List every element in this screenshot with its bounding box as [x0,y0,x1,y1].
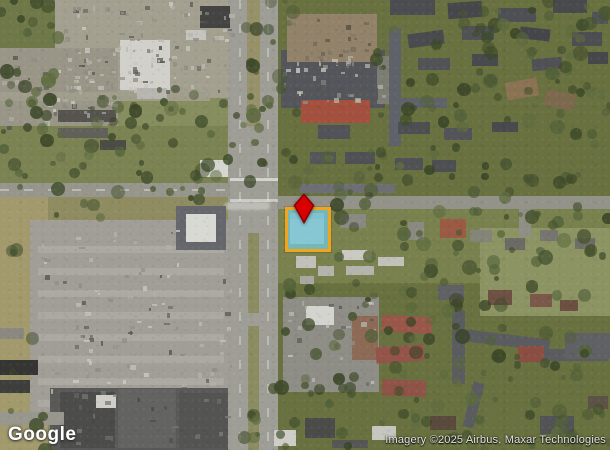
ground-clutter [148,326,152,329]
tree-canopy [525,210,539,224]
ground-clutter [175,46,180,49]
tree-canopy [452,143,461,152]
tree-canopy [47,22,54,29]
nw-grove-ground [0,0,55,48]
tree-canopy [497,230,506,239]
tree-canopy [579,345,591,357]
left-field [0,186,48,450]
tree-canopy [527,51,535,59]
tree-canopy [528,7,535,14]
ground-clutter [220,340,225,342]
tree-canopy [263,24,274,35]
ground-clutter [373,329,375,331]
parking-row [38,312,224,319]
ground-clutter [80,335,82,338]
tree-canopy [265,0,277,8]
tree-canopy [336,427,348,439]
trailer-row [58,128,108,138]
ground-clutter [74,80,79,83]
ground-clutter [306,83,312,86]
tree-canopy [554,419,565,430]
ground-clutter [76,442,81,445]
ground-clutter [350,95,354,97]
ground-clutter [133,62,138,64]
tree-canopy [378,112,384,118]
ground-clutter [172,428,175,432]
house-roof-red [440,219,466,238]
ground-clutter [351,34,356,37]
satellite-map-view[interactable]: Google Imagery ©2025 Airbus, Maxar Techn… [0,0,610,450]
ground-clutter [2,76,5,79]
tree-canopy [426,316,436,326]
trailer-row [58,110,116,122]
tree-canopy [495,8,501,14]
apartment-roof [310,152,336,164]
ground-clutter [87,375,89,378]
ground-clutter [361,322,367,327]
tree-canopy [420,95,434,109]
tree-canopy [9,368,16,375]
ground-clutter [156,54,159,56]
ground-clutter [368,43,371,46]
ground-clutter [371,381,374,384]
tree-canopy [365,297,371,303]
ground-clutter [76,325,78,330]
house-roof [430,416,456,430]
ground-clutter [83,9,88,13]
tree-canopy [573,211,583,221]
ground-clutter [351,47,355,52]
ground-clutter [204,399,209,402]
tree-canopy [207,130,215,138]
ground-clutter [126,47,128,52]
ground-clutter [321,68,325,72]
tree-canopy [475,23,486,34]
ground-clutter [120,33,124,35]
tree-canopy [26,332,39,345]
tree-canopy [471,83,480,92]
apartment-roof [407,30,445,49]
ground-clutter [346,61,351,66]
tree-canopy [198,187,206,195]
ground-clutter [313,76,315,81]
ground-clutter [225,312,231,315]
ground-clutter [85,48,90,53]
tree-canopy [525,410,535,420]
ground-clutter [58,70,61,73]
tree-canopy [246,58,255,67]
ground-clutter [128,71,131,74]
ground-clutter [176,230,181,232]
tree-canopy [458,17,471,30]
ground-clutter [304,68,307,72]
ground-clutter [72,104,77,108]
ground-clutter [379,66,381,69]
ground-clutter [108,124,112,126]
ground-clutter [167,275,170,279]
tree-canopy [534,211,541,218]
ground-clutter [88,71,92,74]
tree-canopy [564,331,577,344]
se-road [463,381,485,428]
tree-canopy [8,408,14,414]
tree-canopy [409,335,417,343]
ground-clutter [76,237,81,240]
tree-canopy [160,98,169,107]
highway-median [247,0,260,126]
ground-clutter [297,62,299,67]
ground-clutter [339,306,342,309]
tree-canopy [430,145,436,151]
ground-clutter [225,416,231,418]
ground-clutter [75,76,80,79]
ground-clutter [77,7,80,11]
tree-canopy [330,198,344,212]
ground-clutter [341,326,346,329]
ground-clutter [103,114,107,117]
tree-canopy [565,25,578,38]
ground-clutter [63,99,68,102]
ground-clutter [123,380,125,383]
ground-clutter [150,420,156,422]
ground-clutter [151,63,153,68]
tree-canopy [398,409,408,419]
tree-canopy [270,39,276,45]
tree-canopy [402,174,413,185]
tree-canopy [548,220,558,230]
tree-canopy [41,110,52,121]
tree-canopy [308,390,315,397]
ground-clutter [44,86,49,90]
ground-clutter [9,83,15,86]
house-roof [488,290,512,305]
ground-clutter [86,35,89,40]
tree-canopy [583,17,597,31]
tree-canopy [304,284,315,295]
tree-canopy [325,399,334,408]
mall-roof [50,388,232,450]
ground-clutter [348,37,351,41]
ground-clutter [217,399,220,404]
ground-clutter [95,290,100,292]
tree-canopy [504,214,509,219]
ground-clutter [188,33,192,37]
tree-canopy [553,176,566,189]
ground-clutter [2,81,7,85]
ground-clutter [88,107,92,109]
tree-canopy [30,0,43,9]
tree-canopy [598,6,610,21]
lane-line [239,0,241,450]
tree-canopy [531,256,542,267]
tree-canopy [514,361,521,368]
apartment-roof [519,26,550,41]
tree-canopy [516,32,530,46]
tree-canopy [557,233,571,247]
ground-clutter [98,293,101,295]
ground-clutter [77,14,80,19]
tree-canopy [276,430,285,439]
tree-canopy [583,82,591,90]
ground-clutter [129,326,134,328]
tree-canopy [587,129,597,139]
tree-canopy [424,165,434,175]
tree-canopy [129,104,142,117]
office-roof [306,306,334,325]
ground-clutter [79,405,82,409]
apartment-roof [352,88,378,100]
ground-clutter [45,121,50,126]
tree-canopy [431,39,442,50]
tree-canopy [452,240,464,252]
tree-canopy [302,318,315,331]
tree-canopy [28,99,36,107]
tree-canopy [223,154,233,164]
tree-canopy [433,205,447,219]
grass-north-of-lot [48,197,230,223]
ground-clutter [19,101,21,105]
ground-clutter [14,65,17,69]
ground-clutter [176,327,179,331]
ground-clutter [122,338,127,343]
tree-canopy [523,174,533,184]
tree-canopy [87,199,100,212]
tree-canopy [352,279,360,287]
ground-clutter [84,340,89,343]
small-building [274,430,296,446]
tree-canopy [552,404,567,419]
ground-clutter [346,326,351,329]
ground-clutter [93,6,95,11]
tree-canopy [428,104,435,111]
ground-clutter [212,368,218,372]
tree-canopy [272,69,287,84]
tree-canopy [48,68,60,80]
tree-canopy [375,164,380,169]
tree-canopy [130,102,137,109]
apartment-roof-red [382,315,433,335]
tree-canopy [597,90,606,99]
ground-clutter [22,82,25,85]
tree-canopy [379,152,387,160]
ground-clutter [365,64,369,68]
ground-clutter [290,23,296,25]
tree-canopy [416,230,423,237]
tree-canopy [15,169,23,177]
tree-canopy [559,61,571,73]
tree-canopy [481,370,487,376]
ground-clutter [31,58,37,62]
tree-canopy [157,87,163,93]
ground-clutter [335,29,338,31]
tree-canopy [31,87,42,98]
apartment-roof [532,57,563,72]
apartment-roof [447,1,482,19]
ground-clutter [125,13,130,16]
ground-clutter [85,439,89,441]
ground-clutter [105,61,108,64]
tree-canopy [266,102,273,109]
ground-clutter [173,62,177,66]
ground-clutter [325,356,330,360]
apartment-loop-road [389,28,401,146]
ground-clutter [44,78,49,83]
ground-clutter [109,422,112,426]
tree-canopy [593,404,604,415]
tree-canopy [561,375,566,380]
tree-canopy [329,340,340,351]
highway [228,0,278,450]
location-pin[interactable] [293,193,315,224]
tree-canopy [139,160,145,166]
ground-clutter [118,46,121,50]
tree-canopy [573,202,582,211]
tree-canopy [304,179,310,185]
tree-canopy [241,22,252,33]
tree-canopy [244,175,257,188]
ground-clutter [205,12,208,15]
dark-building [332,440,368,448]
ground-clutter [152,304,157,306]
tree-canopy [108,133,116,141]
ground-clutter [111,102,115,106]
tree-canopy [90,106,95,111]
nw-shed [186,30,206,40]
ground-clutter [95,368,101,373]
ground-clutter [113,345,118,349]
tree-canopy [449,293,463,307]
ground-clutter [188,13,190,16]
ground-clutter [357,306,359,309]
ground-clutter [90,335,94,339]
tree-canopy [472,30,480,38]
tree-canopy [406,302,417,313]
tree-canopy [556,109,565,118]
tree-canopy [28,17,38,27]
ground-clutter [302,301,304,306]
tree-canopy [268,383,279,394]
tree-canopy [365,192,373,200]
plaza-east-lot [377,56,401,104]
ground-clutter [355,74,358,77]
tree-canopy [426,73,439,86]
ground-clutter [164,323,170,325]
tree-canopy [570,128,582,140]
google-logo-watermark[interactable]: Google [8,424,76,446]
tree-canopy [262,95,275,108]
west-road [0,183,230,197]
ground-clutter [220,352,224,356]
tree-canopy [193,194,205,206]
tree-canopy [479,6,490,17]
ground-clutter [73,77,78,79]
ground-clutter [74,393,79,398]
plaza-roof [287,14,377,62]
tree-canopy [452,377,462,387]
tree-canopy [189,90,199,100]
tree-canopy [238,431,252,445]
parking-row [38,268,224,275]
ground-clutter [114,232,117,237]
tree-canopy [486,335,497,346]
ground-clutter [171,232,173,234]
tree-canopy [246,108,261,123]
tree-canopy [97,95,109,107]
ground-clutter [130,365,136,369]
ground-clutter [4,65,6,69]
ground-clutter [144,84,148,87]
tree-canopy [539,326,553,340]
tree-canopy [288,175,303,190]
tree-canopy [10,243,24,257]
tree-canopy [168,106,175,113]
tree-canopy [8,158,21,171]
tree-canopy [7,81,15,89]
tree-canopy [473,207,482,216]
tree-canopy [109,117,118,126]
ground-clutter [127,364,131,369]
tree-canopy [37,123,48,134]
tree-canopy [156,114,164,122]
apartment-roof [390,0,435,15]
ground-clutter [321,52,325,56]
ground-clutter [210,372,214,376]
gas-canopy [200,160,228,177]
ground-clutter [19,69,22,72]
tree-canopy [314,384,325,395]
highway-median [248,326,259,450]
tree-canopy [399,370,407,378]
tree-canopy [453,357,466,370]
ground-clutter [288,355,293,358]
ground-clutter [115,48,120,53]
tree-canopy [91,117,103,129]
tree-canopy [389,26,396,33]
ground-clutter [171,6,175,10]
ground-clutter [28,78,30,80]
plaza-parking [281,50,385,108]
ground-clutter [351,58,353,63]
tree-canopy [150,186,157,193]
ground-clutter [87,359,91,361]
ground-clutter [284,83,286,87]
tree-canopy [518,212,523,217]
ground-clutter [49,83,54,86]
tree-canopy [56,152,66,162]
tree-canopy [50,161,55,166]
ground-clutter [111,436,114,441]
tree-canopy [301,382,309,390]
ground-clutter [45,259,51,261]
tree-canopy [424,353,430,359]
ground-clutter [305,306,307,310]
tree-canopy [363,250,376,263]
ground-clutter [134,89,137,93]
ground-clutter [347,64,353,67]
tree-canopy [311,284,323,296]
ground-clutter [198,373,201,378]
tree-canopy [389,361,402,374]
apartment-roof [462,26,494,40]
tree-canopy [40,134,54,148]
ground-clutter [169,58,172,61]
tree-canopy [514,354,519,359]
ground-clutter [340,369,343,374]
tree-canopy [348,312,356,320]
ground-clutter [336,63,341,65]
tree-canopy [333,181,344,192]
tree-canopy [282,148,288,154]
